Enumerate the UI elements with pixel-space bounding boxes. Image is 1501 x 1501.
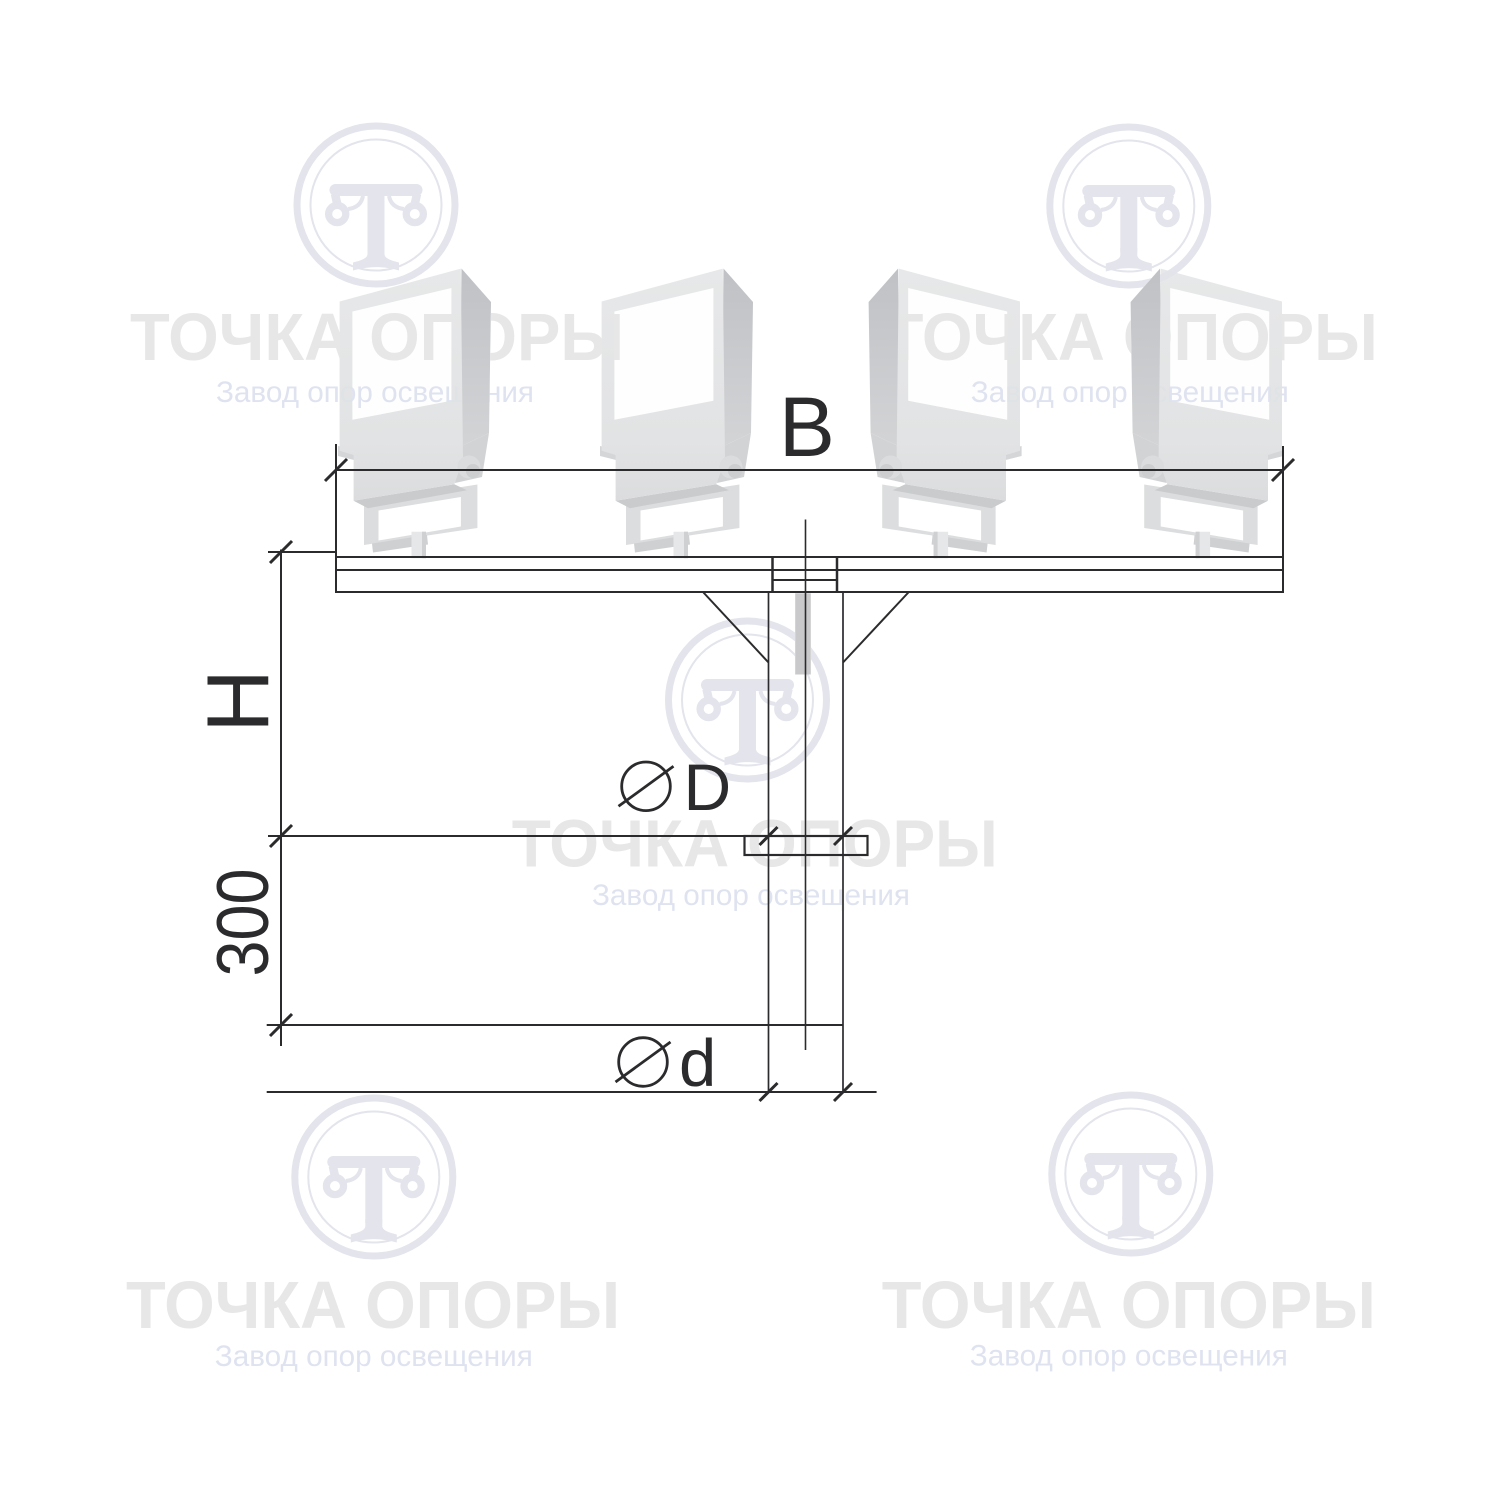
- svg-text:B: B: [779, 380, 835, 474]
- svg-text:ТОЧКА ОПОРЫ: ТОЧКА ОПОРЫ: [512, 807, 998, 882]
- svg-text:Завод опор освещения: Завод опор освещения: [970, 1340, 1288, 1373]
- svg-text:Завод опор освещения: Завод опор освещения: [592, 879, 910, 912]
- svg-text:ТОЧКА ОПОРЫ: ТОЧКА ОПОРЫ: [882, 1268, 1376, 1343]
- svg-text:Завод опор освещения: Завод опор освещения: [971, 376, 1289, 409]
- svg-text:ТОЧКА ОПОРЫ: ТОЧКА ОПОРЫ: [884, 300, 1378, 375]
- svg-text:H: H: [188, 669, 287, 733]
- svg-text:ТОЧКА ОПОРЫ: ТОЧКА ОПОРЫ: [126, 1268, 620, 1343]
- svg-text:d: d: [679, 1026, 716, 1101]
- svg-text:Завод опор освещения: Завод опор освещения: [216, 376, 534, 409]
- svg-text:300: 300: [203, 869, 284, 977]
- svg-text:ТОЧКА ОПОРЫ: ТОЧКА ОПОРЫ: [130, 300, 624, 375]
- svg-text:Завод опор освещения: Завод опор освещения: [215, 1340, 533, 1373]
